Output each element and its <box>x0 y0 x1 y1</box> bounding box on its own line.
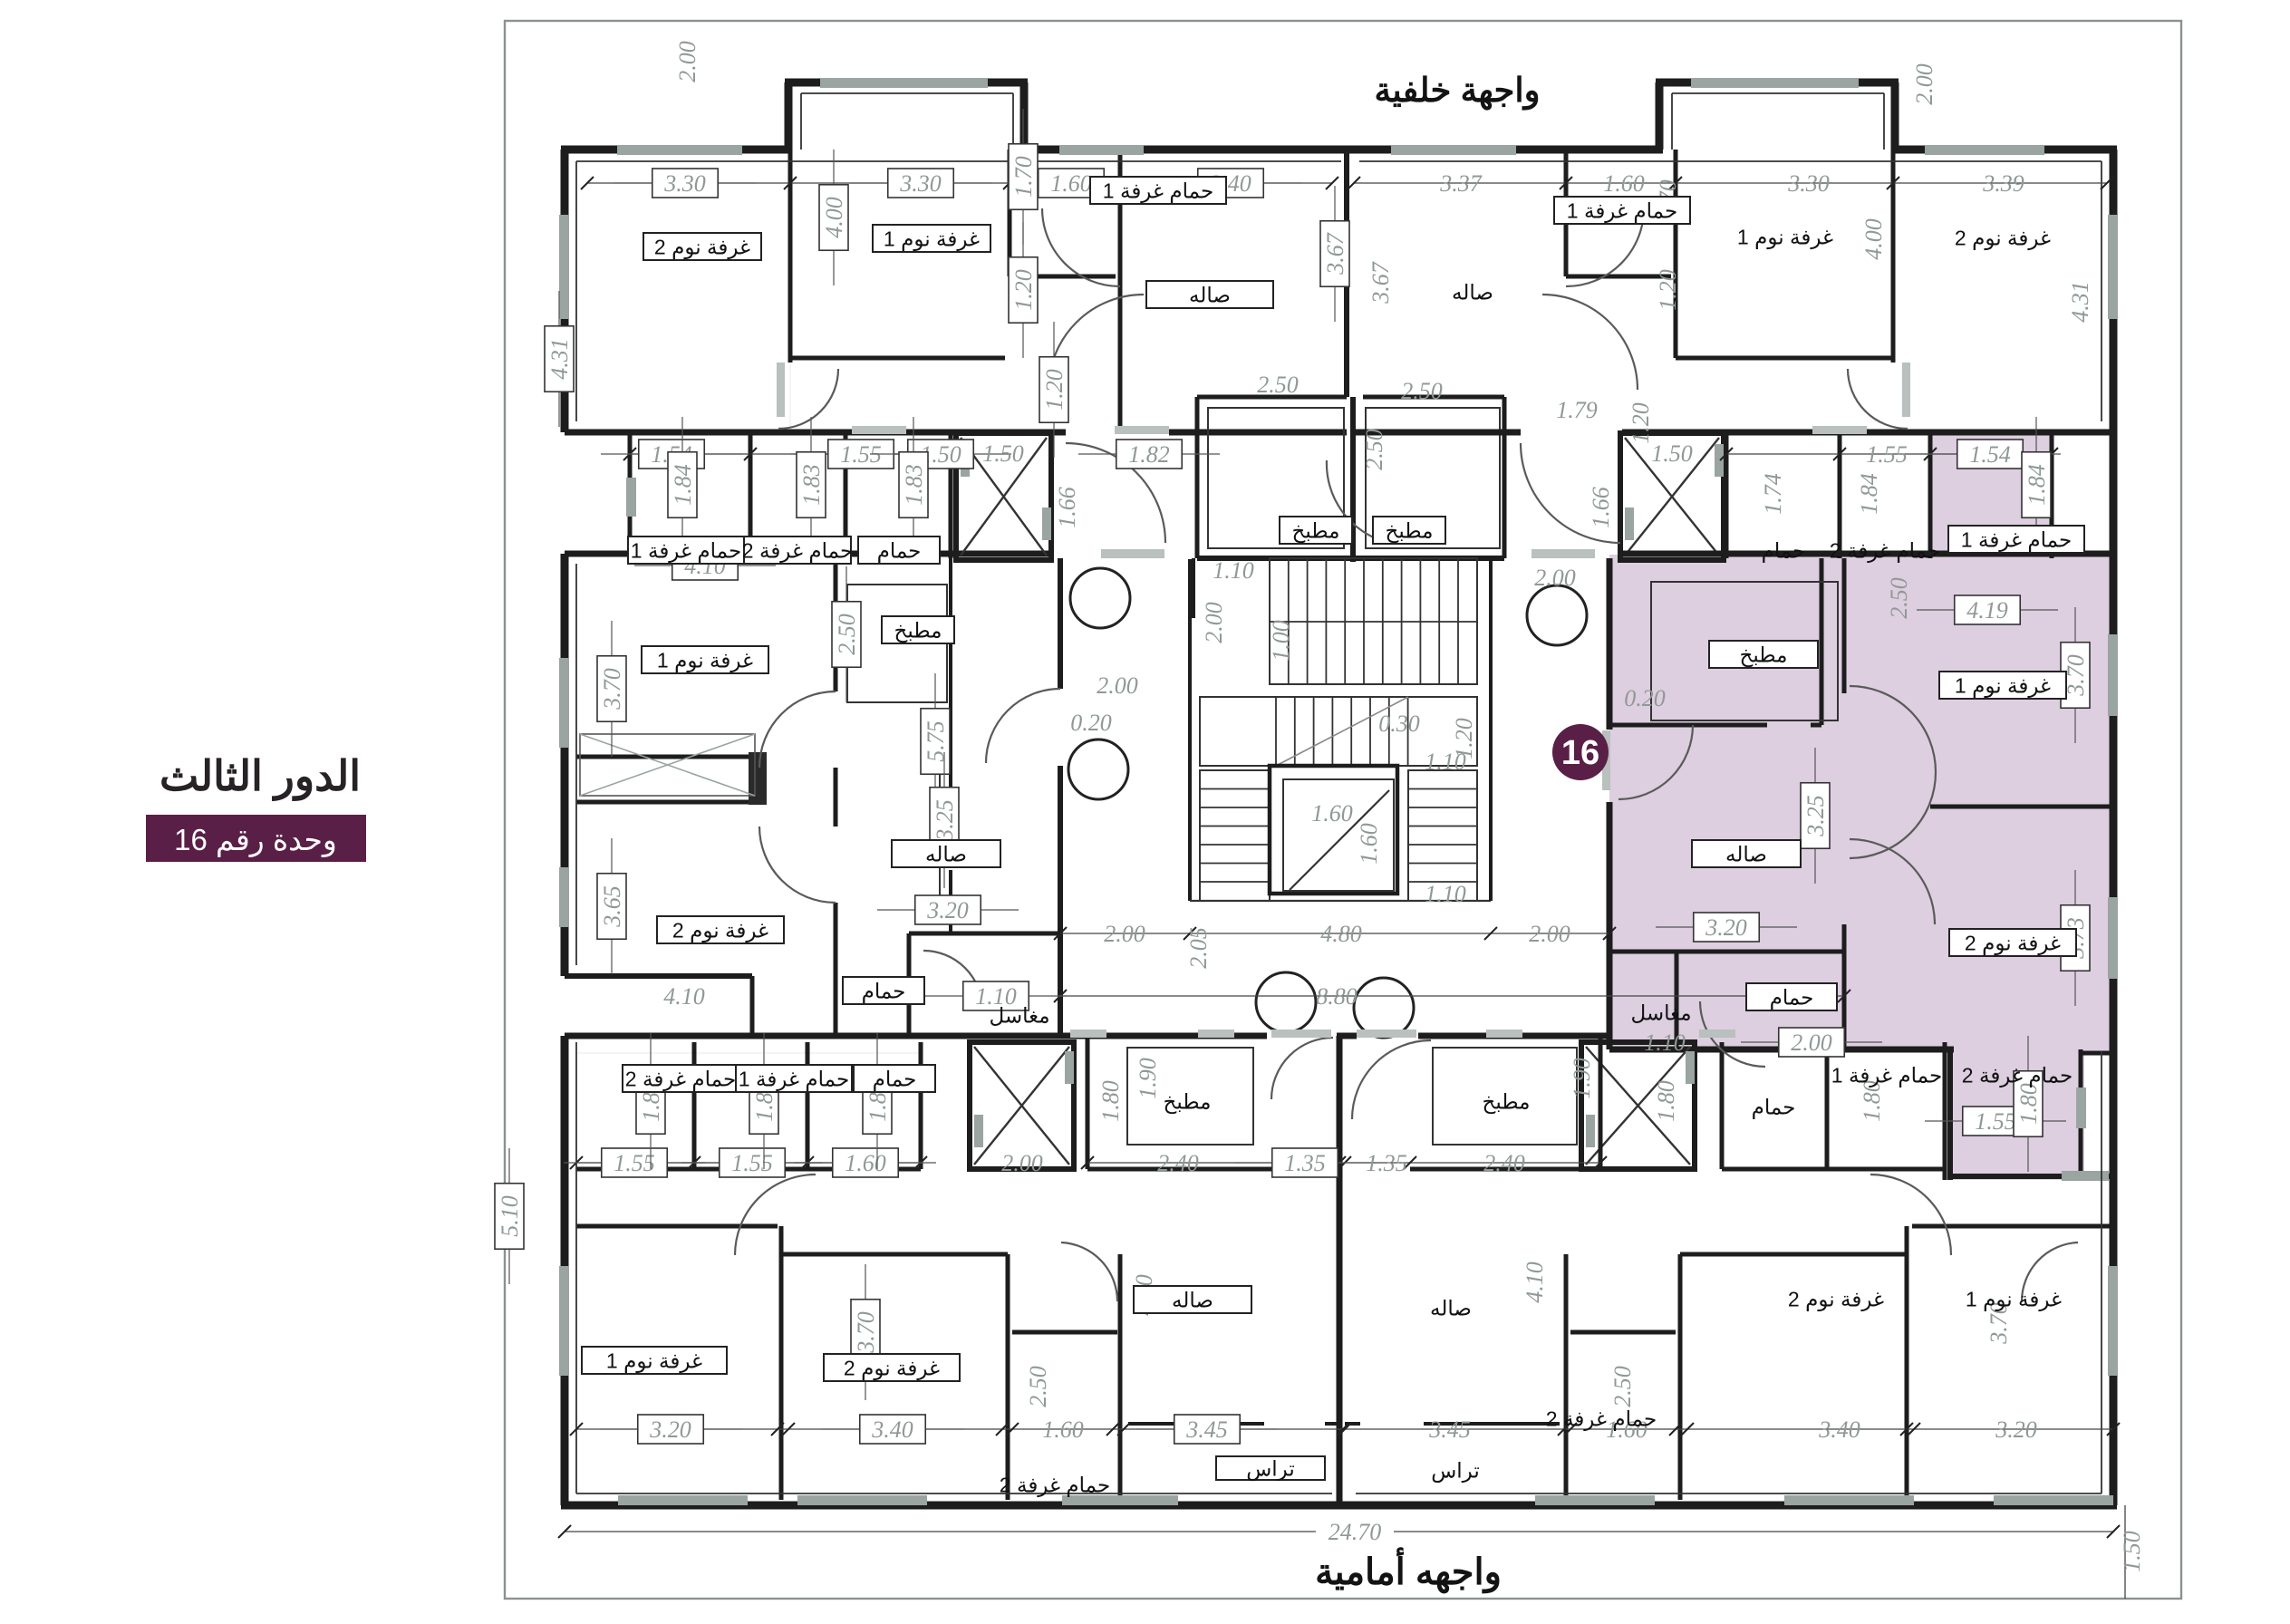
svg-text:تراس: تراس <box>1431 1458 1480 1483</box>
svg-text:صاله: صاله <box>1189 283 1231 306</box>
svg-text:حمام: حمام <box>873 1067 917 1091</box>
svg-text:غرفة نوم 1: غرفة نوم 1 <box>1966 1287 2062 1311</box>
svg-text:حمام: حمام <box>877 538 922 563</box>
svg-text:2.00: 2.00 <box>1097 672 1138 699</box>
svg-text:حمام غرفة 2: حمام غرفة 2 <box>742 538 853 563</box>
svg-text:حمام غرفة 1: حمام غرفة 1 <box>1961 527 2072 552</box>
svg-text:0.30: 0.30 <box>1378 710 1420 737</box>
svg-text:حمام غرفة 2: حمام غرفة 2 <box>1000 1473 1110 1497</box>
svg-text:3.30: 3.30 <box>1787 170 1830 197</box>
svg-text:3.45: 3.45 <box>1428 1416 1471 1443</box>
svg-text:1.00: 1.00 <box>1268 620 1294 662</box>
svg-text:1.83: 1.83 <box>798 464 825 506</box>
svg-text:1.80: 1.80 <box>1653 1080 1679 1122</box>
svg-text:3.37: 3.37 <box>1439 170 1483 197</box>
svg-text:3.20: 3.20 <box>649 1416 691 1443</box>
svg-text:صاله: صاله <box>1172 1288 1213 1311</box>
svg-text:8.80: 8.80 <box>1316 983 1358 1010</box>
svg-text:مطبخ: مطبخ <box>1292 518 1340 543</box>
svg-text:مطبخ: مطبخ <box>894 618 942 643</box>
svg-text:3.20: 3.20 <box>1705 914 1747 941</box>
svg-text:2.05: 2.05 <box>1185 927 1212 969</box>
svg-text:1.79: 1.79 <box>1556 397 1598 423</box>
svg-text:غرفة نوم 1: غرفة نوم 1 <box>1955 673 2051 698</box>
svg-text:حمام غرفة 1: حمام غرفة 1 <box>1567 198 1677 223</box>
svg-text:غرفة نوم 2: غرفة نوم 2 <box>1955 226 2051 250</box>
svg-text:واجهة خلفية: واجهة خلفية <box>1374 72 1540 111</box>
svg-text:2.50: 2.50 <box>1609 1366 1636 1407</box>
svg-text:2.00: 2.00 <box>1911 63 1937 105</box>
svg-text:0.20: 0.20 <box>1070 710 1112 736</box>
svg-text:3.20: 3.20 <box>926 897 969 923</box>
svg-text:0.20: 0.20 <box>1624 685 1666 711</box>
svg-text:مغاسل: مغاسل <box>989 1003 1049 1027</box>
svg-text:1.10: 1.10 <box>1425 749 1466 775</box>
svg-text:4.10: 4.10 <box>663 983 705 1010</box>
svg-text:3.30: 3.30 <box>663 170 706 197</box>
svg-text:1.20: 1.20 <box>1010 269 1037 311</box>
svg-text:2.00: 2.00 <box>1104 921 1145 947</box>
svg-text:4.80: 4.80 <box>1320 921 1362 947</box>
svg-text:2.00: 2.00 <box>1534 565 1576 591</box>
svg-text:3.45: 3.45 <box>1185 1416 1228 1443</box>
svg-text:واجهه أمامية: واجهه أمامية <box>1315 1546 1502 1594</box>
svg-text:1.90: 1.90 <box>1569 1058 1595 1099</box>
svg-text:1.60: 1.60 <box>1042 1416 1084 1443</box>
svg-text:1.84: 1.84 <box>1856 473 1882 515</box>
svg-text:1.70: 1.70 <box>1010 156 1037 198</box>
svg-text:1.74: 1.74 <box>1760 473 1786 515</box>
svg-text:2.50: 2.50 <box>1361 429 1387 470</box>
svg-text:1.50: 1.50 <box>982 440 1024 467</box>
svg-text:16: 16 <box>1561 734 1599 772</box>
svg-text:1.82: 1.82 <box>1128 441 1170 468</box>
svg-text:1.60: 1.60 <box>1311 800 1353 826</box>
svg-text:1.60: 1.60 <box>1356 823 1382 865</box>
svg-text:صاله: صاله <box>925 842 967 865</box>
svg-text:تراس: تراس <box>1246 1456 1295 1481</box>
svg-text:1.84: 1.84 <box>2024 464 2050 506</box>
svg-text:5.10: 5.10 <box>497 1195 523 1237</box>
svg-text:مطبخ: مطبخ <box>1164 1089 1212 1114</box>
svg-text:1.20: 1.20 <box>1041 369 1068 411</box>
svg-text:2.50: 2.50 <box>1257 372 1299 398</box>
svg-text:3.40: 3.40 <box>1818 1416 1860 1443</box>
svg-text:1.80: 1.80 <box>2015 1083 2042 1125</box>
svg-text:الدور الثالث: الدور الثالث <box>159 752 361 801</box>
svg-text:1.60: 1.60 <box>1603 170 1645 197</box>
svg-text:وحدة رقم 16: وحدة رقم 16 <box>174 823 337 858</box>
svg-text:24.70: 24.70 <box>1329 1519 1382 1545</box>
svg-text:غرفة نوم 1: غرفة نوم 1 <box>884 227 980 251</box>
svg-text:غرفة نوم 2: غرفة نوم 2 <box>672 918 768 942</box>
svg-text:2.40: 2.40 <box>1483 1150 1525 1176</box>
svg-text:1.20: 1.20 <box>1628 402 1654 444</box>
svg-text:3.40: 3.40 <box>871 1416 913 1443</box>
svg-text:2.00: 2.00 <box>674 41 701 82</box>
svg-text:1.55: 1.55 <box>1866 441 1908 468</box>
svg-text:1.66: 1.66 <box>1054 487 1080 528</box>
svg-text:2.50: 2.50 <box>1886 577 1912 619</box>
svg-text:1.80: 1.80 <box>1097 1080 1124 1122</box>
svg-text:3.70: 3.70 <box>853 1311 879 1354</box>
svg-text:1.20: 1.20 <box>1655 269 1681 311</box>
svg-text:1.90: 1.90 <box>1135 1058 1161 1099</box>
svg-text:2.40: 2.40 <box>1157 1150 1199 1176</box>
svg-text:حمام غرفة 2: حمام غرفة 2 <box>1962 1063 2073 1087</box>
svg-text:حمام غرفة 2: حمام غرفة 2 <box>625 1067 736 1091</box>
svg-text:صاله: صاله <box>1430 1296 1472 1319</box>
svg-text:صاله: صاله <box>1725 842 1767 865</box>
svg-text:2.00: 2.00 <box>1001 1150 1043 1176</box>
svg-text:1.60: 1.60 <box>845 1150 886 1176</box>
svg-text:1.55: 1.55 <box>1975 1108 2016 1135</box>
svg-text:حمام غرفة 1: حمام غرفة 1 <box>1103 179 1213 203</box>
svg-text:2.00: 2.00 <box>1529 921 1570 947</box>
svg-text:1.10: 1.10 <box>1213 557 1254 584</box>
svg-text:1.55: 1.55 <box>614 1150 655 1176</box>
svg-text:2.50: 2.50 <box>834 614 860 655</box>
svg-text:1.35: 1.35 <box>1366 1150 1407 1176</box>
svg-text:حمام: حمام <box>1770 985 1814 1010</box>
svg-text:صاله: صاله <box>1452 280 1493 304</box>
svg-text:1.55: 1.55 <box>731 1150 773 1176</box>
svg-text:3.20: 3.20 <box>1995 1416 2037 1443</box>
svg-text:1.54: 1.54 <box>1969 441 2011 468</box>
svg-text:4.10: 4.10 <box>1522 1261 1548 1303</box>
svg-text:4.31: 4.31 <box>546 338 573 380</box>
svg-text:3.67: 3.67 <box>1322 232 1348 275</box>
svg-text:حمام: حمام <box>862 979 906 1003</box>
svg-text:مطبخ: مطبخ <box>1740 643 1788 667</box>
svg-text:3.67: 3.67 <box>1367 261 1394 304</box>
svg-text:1.60: 1.60 <box>1050 170 1092 197</box>
svg-text:1.35: 1.35 <box>1284 1150 1326 1176</box>
svg-text:3.70: 3.70 <box>599 668 625 710</box>
svg-text:حمام: حمام <box>1762 538 1806 563</box>
svg-text:1.50: 1.50 <box>1651 440 1693 467</box>
svg-text:3.25: 3.25 <box>1802 795 1829 837</box>
svg-text:1.10: 1.10 <box>1425 881 1466 907</box>
svg-text:1.66: 1.66 <box>1588 487 1614 528</box>
svg-text:مطبخ: مطبخ <box>1483 1089 1531 1114</box>
svg-text:مغاسل: مغاسل <box>1630 1000 1691 1024</box>
svg-text:غرفة نوم 1: غرفة نوم 1 <box>1737 225 1833 249</box>
svg-text:1.84: 1.84 <box>670 464 696 506</box>
svg-text:غرفة نوم 1: غرفة نوم 1 <box>606 1348 702 1373</box>
svg-text:2.00: 2.00 <box>1201 602 1227 643</box>
svg-text:1.10: 1.10 <box>1644 1029 1686 1056</box>
svg-text:3.65: 3.65 <box>599 885 625 928</box>
svg-text:2.50: 2.50 <box>1025 1366 1051 1407</box>
svg-text:1.50: 1.50 <box>2119 1531 2145 1572</box>
svg-text:حمام غرفة 1: حمام غرفة 1 <box>1831 1063 1942 1087</box>
svg-text:2.00: 2.00 <box>1791 1029 1832 1056</box>
svg-text:3.39: 3.39 <box>1982 170 2024 197</box>
svg-text:حمام: حمام <box>1752 1095 1796 1119</box>
svg-text:مطبخ: مطبخ <box>1386 518 1434 543</box>
svg-text:4.00: 4.00 <box>821 197 847 238</box>
svg-text:حمام غرفة 1: حمام غرفة 1 <box>631 538 741 563</box>
svg-text:غرفة نوم 2: غرفة نوم 2 <box>1965 931 2061 955</box>
svg-text:3.30: 3.30 <box>899 170 942 197</box>
svg-text:غرفة نوم 2: غرفة نوم 2 <box>1788 1287 1884 1311</box>
svg-text:حمام غرفة 2: حمام غرفة 2 <box>1546 1406 1657 1431</box>
svg-text:4.31: 4.31 <box>2067 281 2093 323</box>
svg-text:2.50: 2.50 <box>1401 378 1443 404</box>
svg-text:3.25: 3.25 <box>932 799 958 842</box>
svg-text:غرفة نوم 1: غرفة نوم 1 <box>657 648 753 672</box>
svg-text:4.00: 4.00 <box>1860 218 1887 260</box>
svg-text:حمام غرفة 1: حمام غرفة 1 <box>739 1067 849 1091</box>
svg-text:حمام غرفة 2: حمام غرفة 2 <box>1830 538 1940 563</box>
svg-text:غرفة نوم 2: غرفة نوم 2 <box>844 1356 940 1380</box>
svg-text:1.83: 1.83 <box>901 464 927 506</box>
svg-text:غرفة نوم 2: غرفة نوم 2 <box>654 235 750 259</box>
svg-text:4.19: 4.19 <box>1966 597 2008 623</box>
